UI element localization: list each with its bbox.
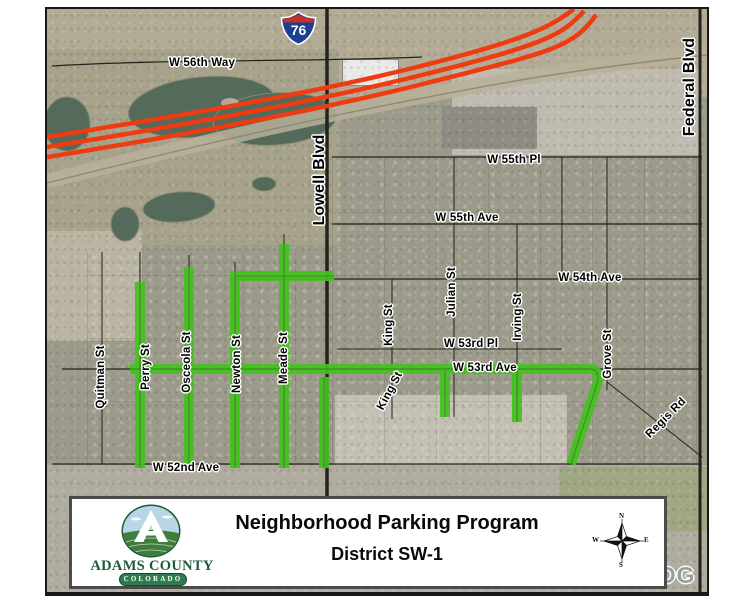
shield-route-number: 76	[280, 22, 317, 38]
map-titles: Neighborhood Parking Program District SW…	[222, 499, 552, 586]
compass-s: S	[619, 561, 623, 569]
label-w55th-pl: W 55th Pl	[487, 154, 541, 166]
page: 76 W 56th Way Lowell Blvd Federal Blvd W…	[0, 0, 750, 600]
compass-w: W	[592, 536, 599, 544]
adams-county-logo: ADAMS COUNTY COLORADO	[82, 501, 222, 585]
label-w53rd-pl: W 53rd Pl	[444, 338, 498, 350]
label-julian-st: Julian St	[446, 267, 458, 317]
label-w53rd-ave: W 53rd Ave	[453, 362, 517, 374]
title-block: ADAMS COUNTY COLORADO Neighborhood Parki…	[69, 496, 667, 589]
label-federal-blvd: Federal Blvd	[681, 38, 699, 136]
label-w55th-ave: W 55th Ave	[435, 212, 498, 224]
label-meade-st: Meade St	[278, 332, 290, 384]
label-w54th-ave: W 54th Ave	[558, 272, 621, 284]
label-perry-st: Perry St	[140, 344, 152, 390]
map-subtitle: District SW-1	[222, 544, 552, 565]
compass-e: E	[644, 536, 649, 544]
compass-n: N	[619, 512, 624, 520]
label-quitman-st: Quitman St	[95, 345, 107, 408]
label-grove-st: Grove St	[602, 329, 614, 379]
label-lowell-blvd: Lowell Blvd	[311, 134, 329, 225]
label-osceola-st: Osceola St	[181, 331, 193, 392]
compass-rose: N E S W	[598, 517, 646, 565]
map-title: Neighborhood Parking Program	[222, 512, 552, 535]
interstate-76-shield: 76	[280, 11, 317, 46]
map-canvas: 76 W 56th Way Lowell Blvd Federal Blvd W…	[45, 7, 709, 596]
label-irving-st: Irving St	[512, 293, 524, 341]
label-king-st-north: King St	[383, 304, 395, 346]
label-w52nd-ave: W 52nd Ave	[153, 462, 219, 474]
logo-state-name: COLORADO	[119, 573, 187, 586]
adams-county-seal	[120, 504, 182, 558]
label-newton-st: Newton St	[231, 335, 243, 393]
label-w56th-way: W 56th Way	[169, 57, 235, 69]
